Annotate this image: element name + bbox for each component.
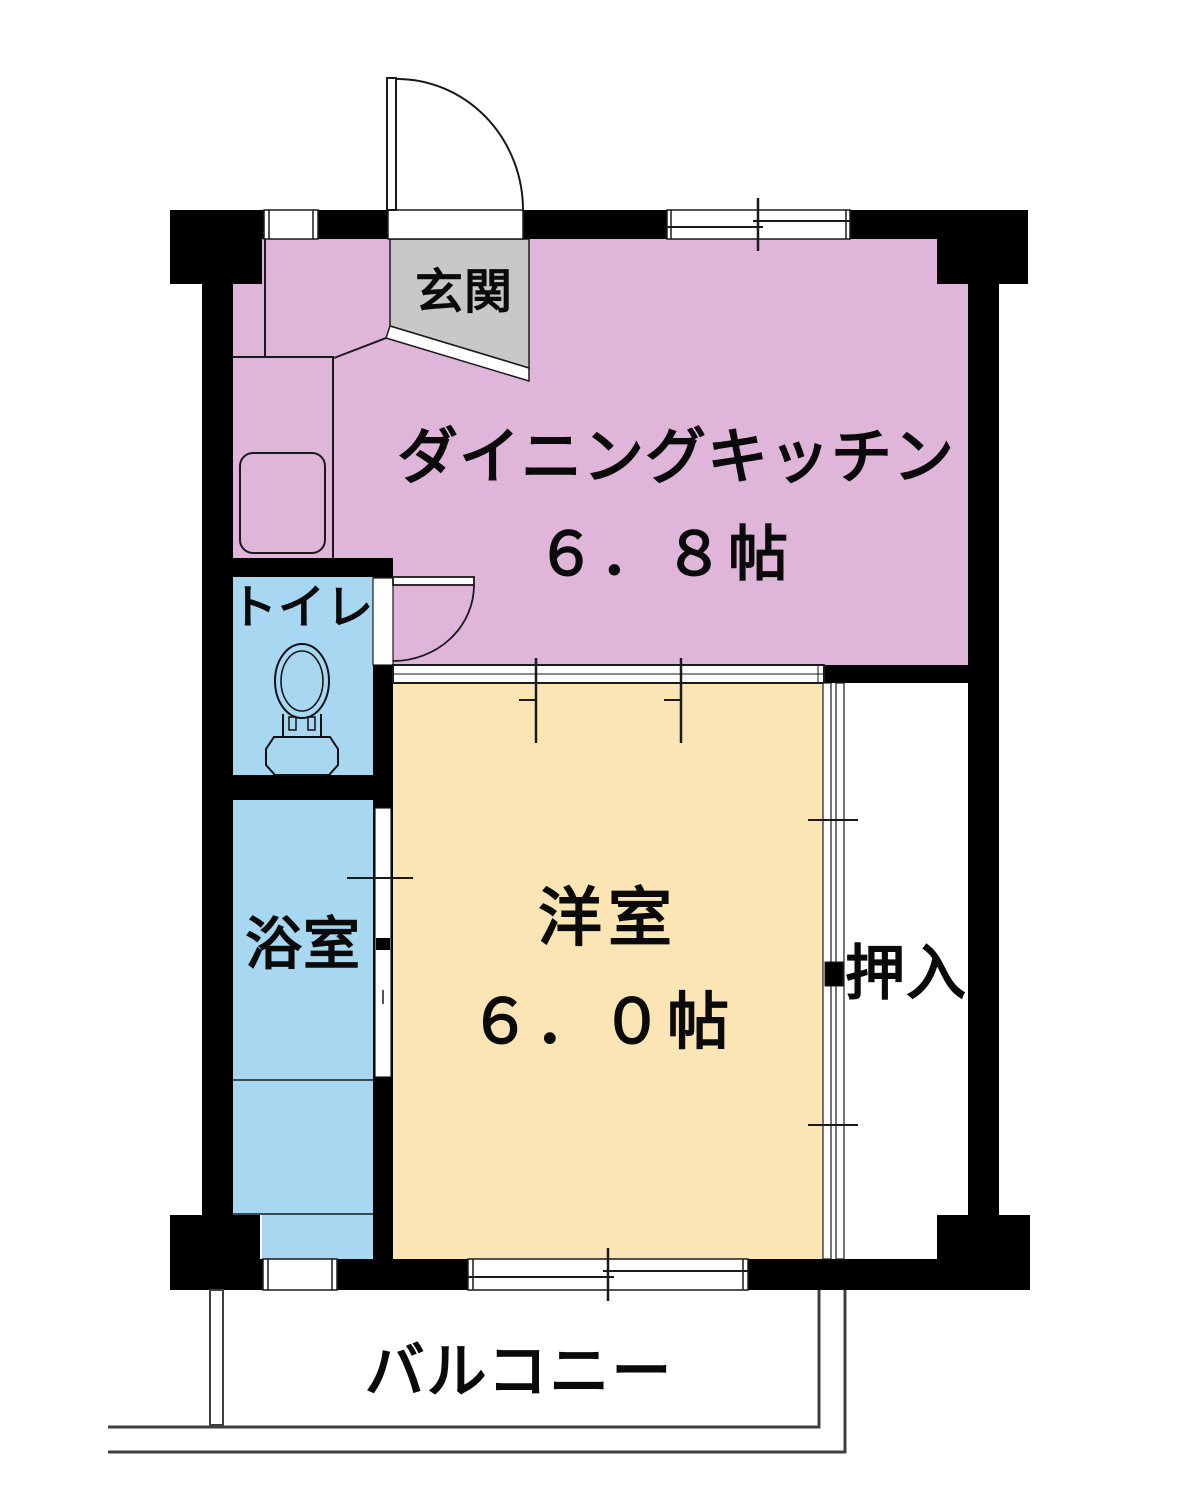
western-room-floor [393,665,824,1259]
wall-left [202,210,233,1259]
entrance-door-swing [397,79,523,210]
entrance-door-leaf [387,78,396,210]
floor-plan: 玄関 ダイニングキッチン ６．８帖 トイレ 浴室 洋室 ６．０帖 押入 バルコニ… [0,0,1200,1500]
toilet-label: トイレ [230,584,374,631]
bathroom-floor [233,800,373,1215]
closet-label: 押入 [845,944,967,1004]
balcony-divider [210,1290,223,1425]
wall-closet-top [824,665,968,683]
dining-kitchen-size: ６．８帖 [536,525,792,585]
window-kitchen [264,210,318,239]
balcony-label: バルコニー [365,1342,674,1402]
wall-toilet-bath [233,775,393,800]
wall-toilet-top [202,558,393,577]
dining-kitchen-label: ダイニングキッチン [397,427,955,488]
floor-plan-drawing [0,0,1200,1500]
bathroom-floor-lower [262,1215,373,1261]
western-room-size: ６．０帖 [469,992,733,1054]
toilet-doorway [373,578,393,665]
fusuma-handle [825,962,843,986]
entrance-opening [388,210,523,239]
western-room-label: 洋室 [538,886,678,950]
entrance-door [387,78,523,239]
bathroom-door-handle [376,938,390,950]
genkan-label: 玄関 [415,269,513,317]
toilet-door-leaf [393,577,474,585]
bathroom-label: 浴室 [245,917,361,974]
room-fills [233,238,968,1261]
window-bathroom [263,1259,337,1290]
wall-right [968,210,999,1290]
